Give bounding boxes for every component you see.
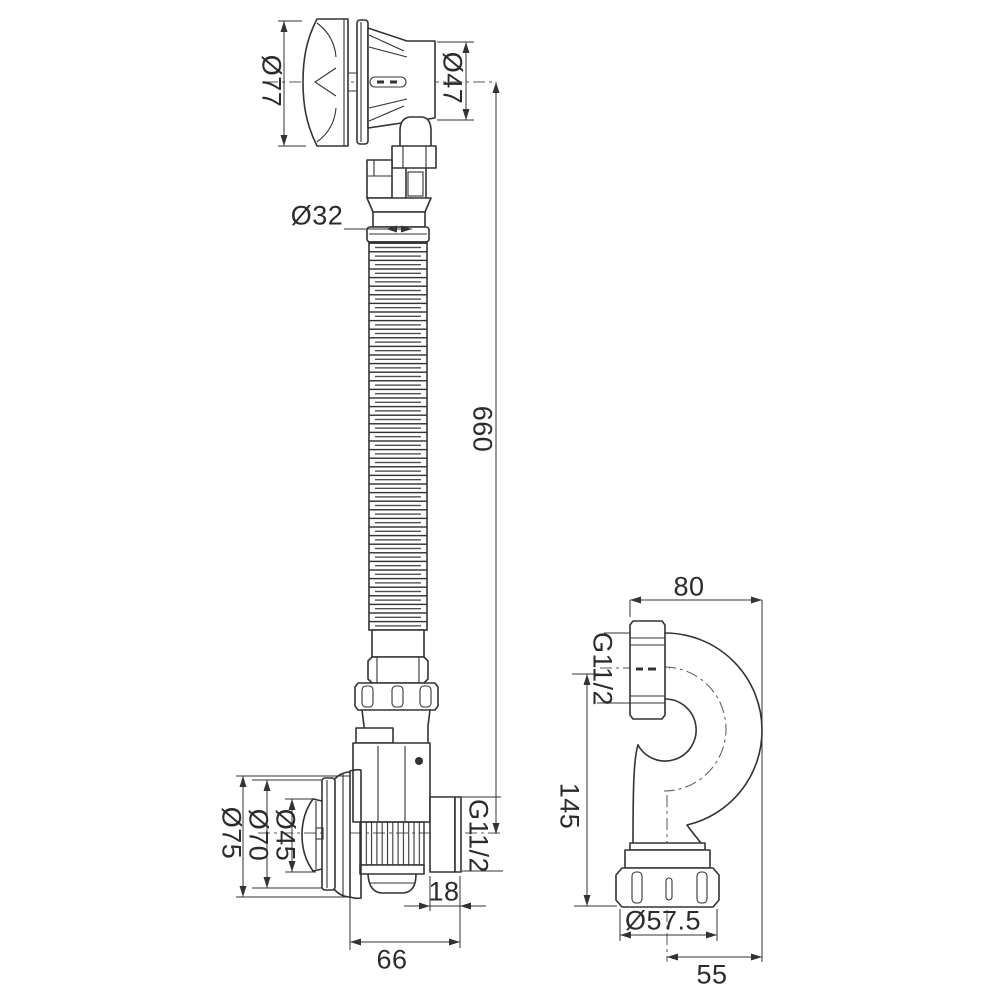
technical-drawing-canvas: Ø77 Ø47 Ø32 660 G11/2 18 66 Ø75 Ø70 Ø45 … — [0, 0, 1000, 1000]
dim-seal-diameter: Ø75 — [218, 807, 245, 860]
flexible-hose — [368, 242, 428, 683]
overflow-hole — [415, 757, 423, 765]
drain-tee-body — [353, 728, 461, 893]
dim-outlet-length: 18 — [428, 879, 459, 906]
overflow-elbow — [367, 117, 436, 242]
dim-trap-width: 80 — [673, 574, 704, 601]
dimension-lines — [236, 21, 762, 962]
pop-up-plug — [302, 770, 361, 899]
dim-plug-diameter: Ø45 — [272, 809, 299, 862]
dim-overflow-body-diameter: Ø47 — [439, 52, 466, 105]
drain-outlet — [430, 797, 455, 872]
dim-hose-diameter: Ø32 — [291, 203, 344, 230]
dim-trap-height: 145 — [556, 783, 583, 830]
dim-flange-diameter: Ø70 — [245, 809, 272, 862]
dim-trap-outlet-offset: 55 — [696, 962, 727, 989]
dim-trap-nut-diameter: Ø57.5 — [625, 908, 701, 935]
dim-outlet-thread: G11/2 — [465, 799, 492, 873]
dim-body-width: 66 — [376, 947, 407, 974]
s-trap — [616, 621, 762, 907]
s-trap-inlet-nut — [630, 621, 665, 719]
dim-hose-length: 660 — [469, 406, 496, 453]
s-trap-bend — [665, 633, 762, 843]
dim-overflow-cap-diameter: Ø77 — [258, 55, 285, 108]
dim-trap-inlet-thread: G11/2 — [589, 632, 616, 706]
drawing-geometry — [0, 0, 1000, 1000]
threaded-tail — [360, 822, 424, 865]
